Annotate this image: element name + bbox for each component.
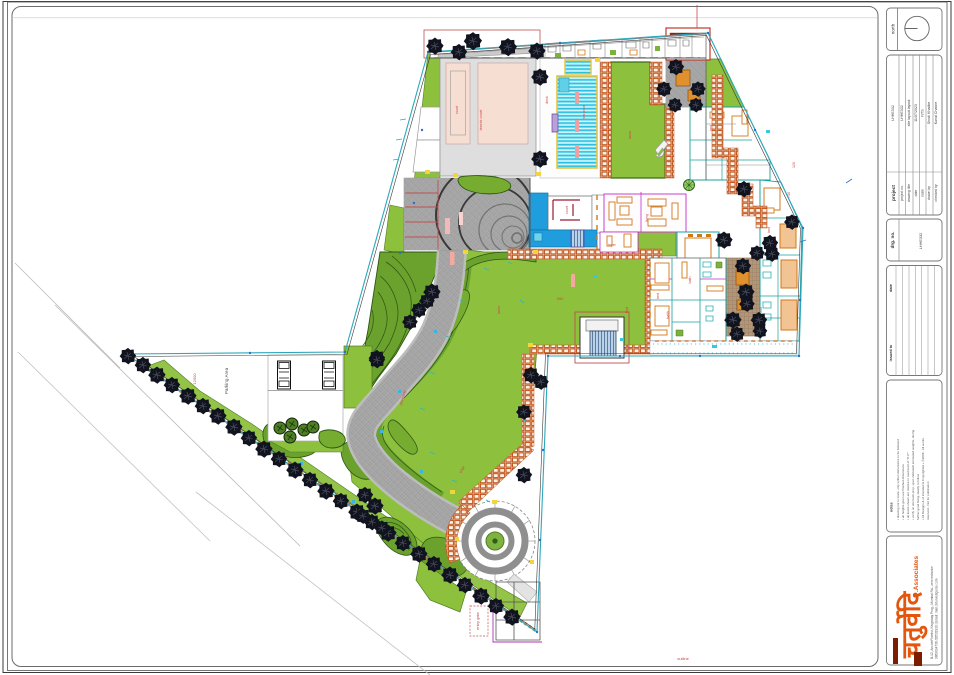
svg-text:reserved - Not for publication: reserved - Not for publication: [926, 481, 930, 520]
svg-text:9869094736 /28532910 | Email:: 9869094736 /28532910 | Email: mail.chtur…: [935, 578, 939, 659]
svg-text:project no.: project no.: [900, 185, 904, 201]
svg-text:B-12, AncoerFinetist, Kingsway: B-12, AncoerFinetist, Kingsway Prog., Mu…: [930, 566, 934, 659]
svg-text:NTS: NTS: [921, 109, 925, 117]
svg-text:date: date: [889, 284, 893, 292]
svg-text:LHHE332: LHHE332: [891, 105, 895, 121]
svg-text:foyer: foyer: [608, 243, 616, 247]
svg-text:LHHE332: LHHE332: [919, 233, 923, 249]
svg-text:further good fixing, ideally t: further good fixing, ideally to follow: [916, 473, 920, 520]
svg-text:entry gate: entry gate: [475, 611, 480, 630]
svg-text:bath: bath: [666, 311, 670, 318]
svg-text:checked by: checked by: [934, 184, 938, 201]
svg-text:12000: 12000: [192, 373, 197, 385]
svg-text:चतुर्वेदि: चतुर्वेदि: [896, 590, 928, 659]
svg-text:Kunal Chawre: Kunal Chawre: [934, 102, 938, 125]
svg-text:bed: bed: [656, 293, 660, 299]
svg-text:deck: deck: [601, 126, 605, 134]
svg-text:issued to: issued to: [889, 344, 893, 361]
svg-text:120: 120: [792, 162, 796, 168]
svg-text:740: 740: [787, 192, 791, 198]
svg-text:• All Designs & of intended &: • All Designs & of intended & Copyrighte…: [921, 438, 925, 520]
svg-text:court: court: [455, 106, 459, 114]
svg-text:scale: scale: [921, 189, 925, 197]
svg-text:• all heights given are finis: • all heights given are finished dimensi…: [901, 464, 905, 520]
svg-text:Parking Area: Parking Area: [224, 367, 229, 394]
svg-text:drawing title: drawing title: [907, 184, 911, 202]
svg-text:340: 340: [759, 307, 763, 313]
svg-text:bed: bed: [625, 307, 629, 313]
svg-text:bed: bed: [709, 125, 713, 131]
svg-text:site layout layout: site layout layout: [907, 100, 911, 127]
svg-text:drg. no.: drg. no.: [890, 232, 895, 249]
svg-text:sw pool: sw pool: [581, 105, 586, 119]
svg-text:lawn: lawn: [627, 131, 632, 139]
svg-text:tennis court: tennis court: [478, 109, 483, 131]
svg-text:• verify on site back-prop. u: • verify on site back-prop. upon indicat…: [911, 430, 915, 520]
svg-text:11/07/2023: 11/07/2023: [914, 104, 918, 122]
svg-text:bath: bath: [688, 277, 692, 284]
svg-text:outline: outline: [677, 656, 690, 661]
svg-text:notes: notes: [890, 502, 894, 512]
svg-text:project: project: [891, 185, 897, 201]
svg-text:Shruti Khadke: Shruti Khadke: [927, 102, 931, 125]
svg-text:north: north: [891, 23, 896, 34]
svg-text:date: date: [914, 190, 918, 197]
svg-text:court: court: [565, 206, 569, 214]
svg-text:• all levels shown are relati: • all levels shown are relative to road …: [906, 452, 910, 520]
svg-text:bed: bed: [767, 227, 771, 233]
svg-text:LHHE332: LHHE332: [900, 105, 904, 121]
svg-text:950: 950: [557, 296, 564, 301]
svg-text:.Associates: .Associates: [913, 555, 920, 592]
svg-text:drawn by: drawn by: [927, 186, 931, 200]
svg-text:deck: deck: [545, 96, 549, 104]
svg-text:• drawing not to scale. only: • drawing not to scale. only written dim…: [896, 439, 900, 520]
svg-text:living: living: [645, 214, 649, 222]
svg-text:lawn: lawn: [496, 306, 501, 314]
